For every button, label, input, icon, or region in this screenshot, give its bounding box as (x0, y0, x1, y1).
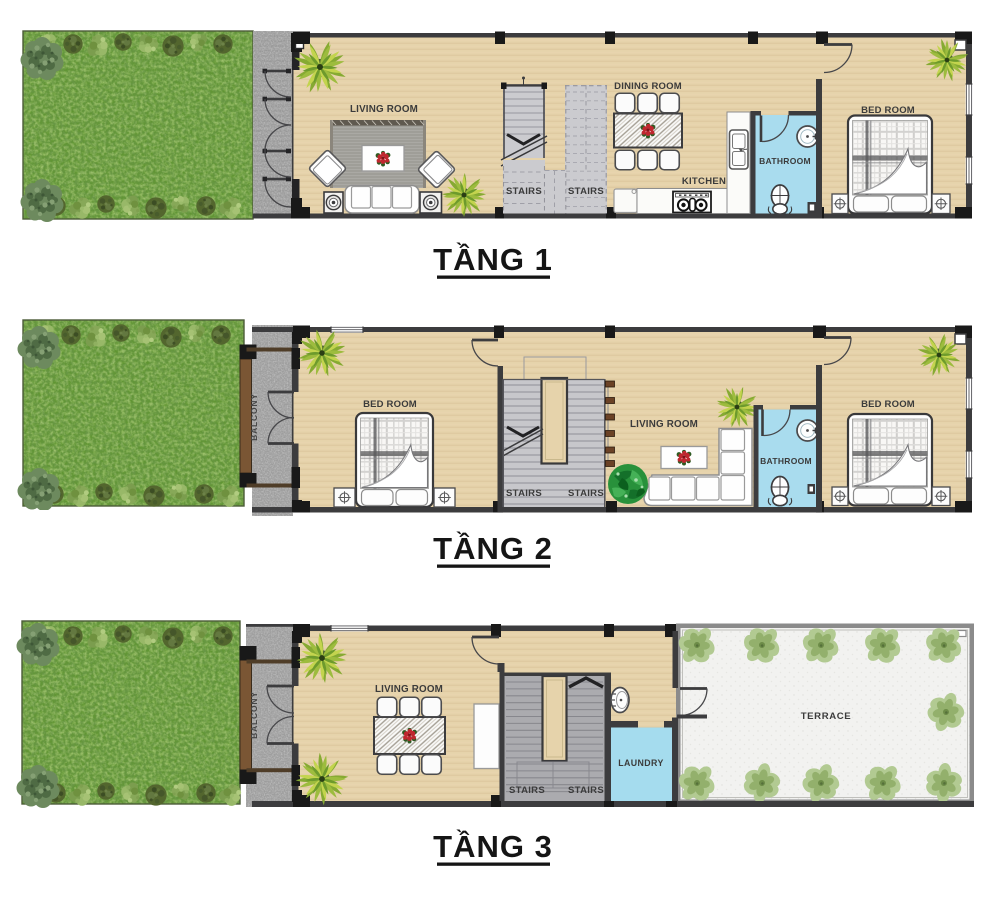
svg-text:LIVING ROOM: LIVING ROOM (375, 684, 443, 695)
svg-text:BED ROOM: BED ROOM (861, 105, 915, 116)
svg-text:LAUNDRY: LAUNDRY (618, 758, 663, 768)
svg-text:KITCHEN: KITCHEN (682, 176, 726, 187)
svg-text:BED ROOM: BED ROOM (861, 399, 915, 410)
svg-text:BATHROOM: BATHROOM (760, 456, 812, 466)
svg-text:STAIRS: STAIRS (509, 785, 545, 796)
svg-text:DINING ROOM: DINING ROOM (614, 81, 682, 92)
svg-text:BATHROOM: BATHROOM (759, 156, 811, 166)
svg-text:LIVING ROOM: LIVING ROOM (630, 419, 698, 430)
svg-text:BED ROOM: BED ROOM (363, 399, 417, 410)
svg-text:STAIRS: STAIRS (568, 785, 604, 796)
svg-text:TẦNG 3: TẦNG 3 (433, 829, 553, 864)
svg-text:TẦNG 1: TẦNG 1 (433, 242, 553, 277)
svg-text:TẦNG 2: TẦNG 2 (433, 531, 553, 566)
svg-text:STAIRS: STAIRS (506, 186, 542, 197)
svg-text:BALCONY: BALCONY (249, 393, 259, 441)
svg-text:STAIRS: STAIRS (568, 186, 604, 197)
svg-text:STAIRS: STAIRS (506, 488, 542, 499)
svg-text:LIVING ROOM: LIVING ROOM (350, 104, 418, 115)
svg-text:BALCONY: BALCONY (249, 691, 259, 739)
svg-text:STAIRS: STAIRS (568, 488, 604, 499)
svg-text:TERRACE: TERRACE (801, 711, 852, 722)
